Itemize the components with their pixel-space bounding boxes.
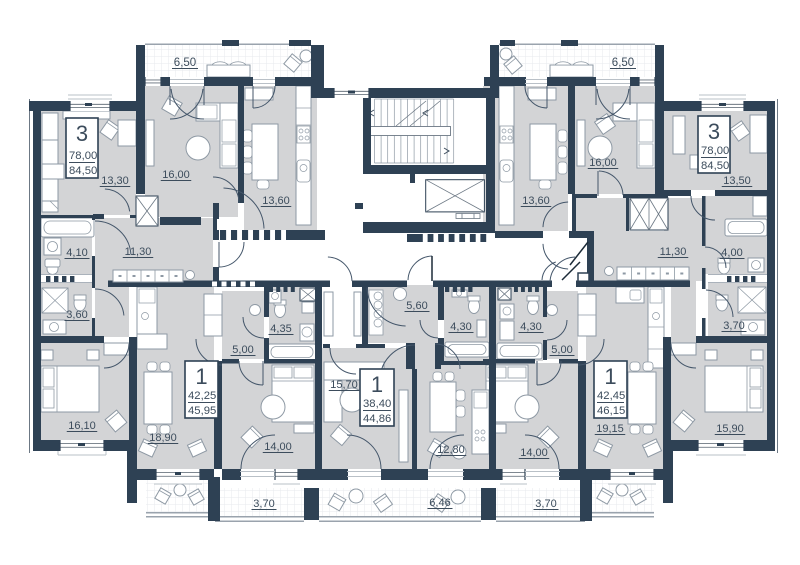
svg-text:16,00: 16,00 [589, 157, 617, 169]
svg-text:18,90: 18,90 [149, 432, 177, 444]
svg-text:42,45: 42,45 [597, 390, 625, 402]
svg-text:3,70: 3,70 [253, 498, 274, 510]
svg-text:3: 3 [76, 121, 88, 146]
svg-text:11,30: 11,30 [125, 246, 152, 258]
svg-text:11,30: 11,30 [660, 246, 687, 258]
svg-text:12,80: 12,80 [437, 444, 465, 456]
svg-text:16,00: 16,00 [162, 169, 190, 181]
svg-text:4,30: 4,30 [450, 321, 471, 333]
svg-text:3: 3 [708, 119, 720, 144]
svg-text:6,50: 6,50 [174, 57, 196, 69]
svg-text:1: 1 [371, 372, 383, 397]
svg-text:4,30: 4,30 [520, 321, 541, 333]
svg-text:13,60: 13,60 [522, 195, 550, 207]
svg-text:38,40: 38,40 [363, 398, 391, 410]
svg-text:14,00: 14,00 [520, 447, 548, 459]
svg-text:1: 1 [195, 364, 207, 389]
svg-text:4,10: 4,10 [66, 247, 87, 259]
svg-text:84,50: 84,50 [69, 165, 97, 177]
svg-text:19,15: 19,15 [596, 423, 624, 435]
svg-text:16,10: 16,10 [68, 420, 96, 432]
svg-text:4,00: 4,00 [721, 247, 742, 259]
svg-text:44,86: 44,86 [363, 413, 391, 425]
svg-text:78,00: 78,00 [69, 150, 97, 162]
svg-text:3,70: 3,70 [723, 320, 744, 332]
svg-text:3,60: 3,60 [66, 309, 87, 321]
svg-text:1: 1 [604, 364, 616, 389]
svg-text:15,90: 15,90 [716, 423, 744, 435]
svg-text:15,70: 15,70 [330, 379, 358, 391]
svg-text:45,95: 45,95 [188, 405, 216, 417]
svg-text:78,00: 78,00 [701, 145, 729, 157]
svg-text:13,50: 13,50 [723, 175, 751, 187]
svg-text:5,00: 5,00 [232, 344, 253, 356]
svg-text:5,60: 5,60 [406, 300, 427, 312]
svg-text:6,46: 6,46 [429, 497, 450, 509]
svg-text:4,35: 4,35 [270, 323, 291, 335]
svg-text:46,15: 46,15 [597, 405, 625, 417]
svg-text:42,25: 42,25 [188, 390, 216, 402]
svg-text:6,50: 6,50 [612, 57, 634, 69]
svg-text:14,00: 14,00 [264, 441, 292, 453]
svg-text:3,70: 3,70 [535, 498, 556, 510]
svg-text:5,00: 5,00 [551, 344, 572, 356]
svg-text:13,60: 13,60 [262, 195, 290, 207]
svg-text:13,30: 13,30 [101, 175, 129, 187]
svg-text:84,50: 84,50 [701, 160, 729, 172]
